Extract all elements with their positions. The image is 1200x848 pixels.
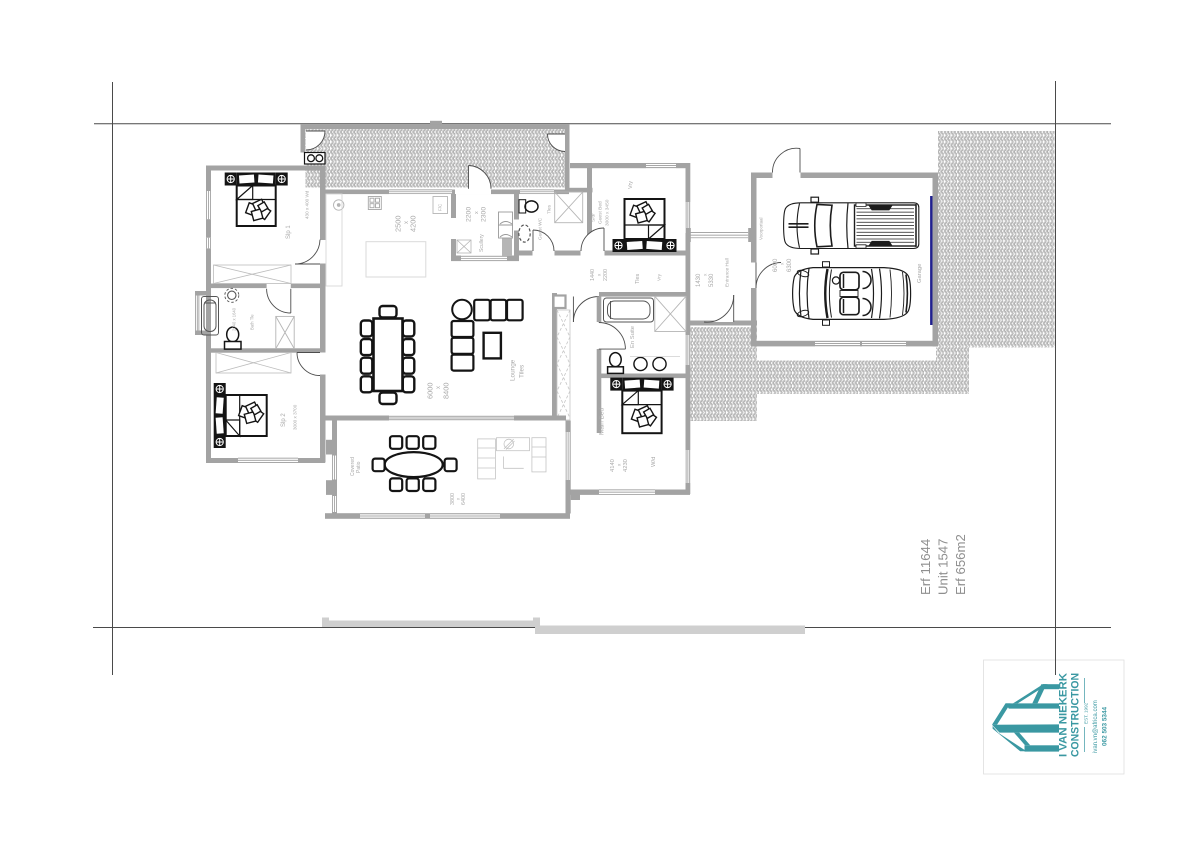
svg-text:Scullery: Scullery xyxy=(479,234,485,252)
svg-text:x: x xyxy=(474,211,480,214)
svg-text:Tiles: Tiles xyxy=(518,365,525,378)
svg-text:1430: 1430 xyxy=(696,273,702,287)
svg-text:Guest Bed: Guest Bed xyxy=(598,201,604,224)
svg-text:2500: 2500 xyxy=(394,216,403,232)
svg-text:Vry: Vry xyxy=(657,273,663,281)
svg-text:Entrance Hall: Entrance Hall xyxy=(725,258,731,287)
svg-text:Patio: Patio xyxy=(356,461,362,473)
svg-text:EST. 1992: EST. 1992 xyxy=(1084,702,1089,724)
svg-text:Tles: Tles xyxy=(547,204,553,214)
svg-text:Erf 656m2: Erf 656m2 xyxy=(953,534,968,595)
svg-text:Tles: Tles xyxy=(635,274,641,284)
svg-text:Unit 1547: Unit 1547 xyxy=(936,539,951,595)
svg-text:I VAN NIEKERK: I VAN NIEKERK xyxy=(1058,672,1070,757)
svg-text:2300: 2300 xyxy=(480,207,487,222)
svg-text:430 x 400 Wd: 430 x 400 Wd xyxy=(305,190,310,219)
svg-text:6000: 6000 xyxy=(773,258,779,272)
svg-text:5330: 5330 xyxy=(709,273,715,287)
svg-text:S/dr: S/dr xyxy=(591,213,597,222)
svg-text:4200: 4200 xyxy=(409,216,418,232)
svg-text:Erf 11644: Erf 11644 xyxy=(918,539,933,595)
svg-text:3000 x 3700: 3000 x 3700 xyxy=(293,404,298,430)
svg-text:Voorportaal: Voorportaal xyxy=(759,218,764,240)
svg-text:Slp 2: Slp 2 xyxy=(281,413,287,427)
svg-text:3000 x 3450: 3000 x 3450 xyxy=(605,199,611,226)
svg-text:F/C: F/C xyxy=(438,203,443,211)
svg-text:2040 x 1640: 2040 x 1640 xyxy=(232,307,237,331)
svg-text:6400: 6400 xyxy=(461,493,467,505)
svg-text:Guest WC: Guest WC xyxy=(538,217,544,240)
svg-text:062 503 5344: 062 503 5344 xyxy=(1102,706,1109,746)
svg-text:En Suite: En Suite xyxy=(630,326,636,348)
svg-text:8400: 8400 xyxy=(442,383,451,399)
svg-text:Vry: Vry xyxy=(628,181,634,189)
svg-text:Main Bed: Main Bed xyxy=(598,408,605,435)
svg-text:6000: 6000 xyxy=(426,383,435,399)
svg-text:2200: 2200 xyxy=(603,269,609,281)
svg-text:2200: 2200 xyxy=(465,207,472,222)
svg-text:ivan.vn@africa.com: ivan.vn@africa.com xyxy=(1093,700,1099,753)
svg-text:Garage: Garage xyxy=(917,264,923,283)
svg-text:CONSTRUCTION: CONSTRUCTION xyxy=(1070,673,1082,757)
svg-text:6300: 6300 xyxy=(787,258,793,272)
svg-text:1440: 1440 xyxy=(590,269,596,281)
svg-text:Bath Tle: Bath Tle xyxy=(250,314,255,330)
svg-text:4230: 4230 xyxy=(623,459,629,472)
svg-text:4140: 4140 xyxy=(610,459,616,472)
svg-text:Slp 1: Slp 1 xyxy=(286,225,292,239)
svg-text:W/d: W/d xyxy=(651,457,657,467)
svg-text:Lounge: Lounge xyxy=(509,359,516,381)
